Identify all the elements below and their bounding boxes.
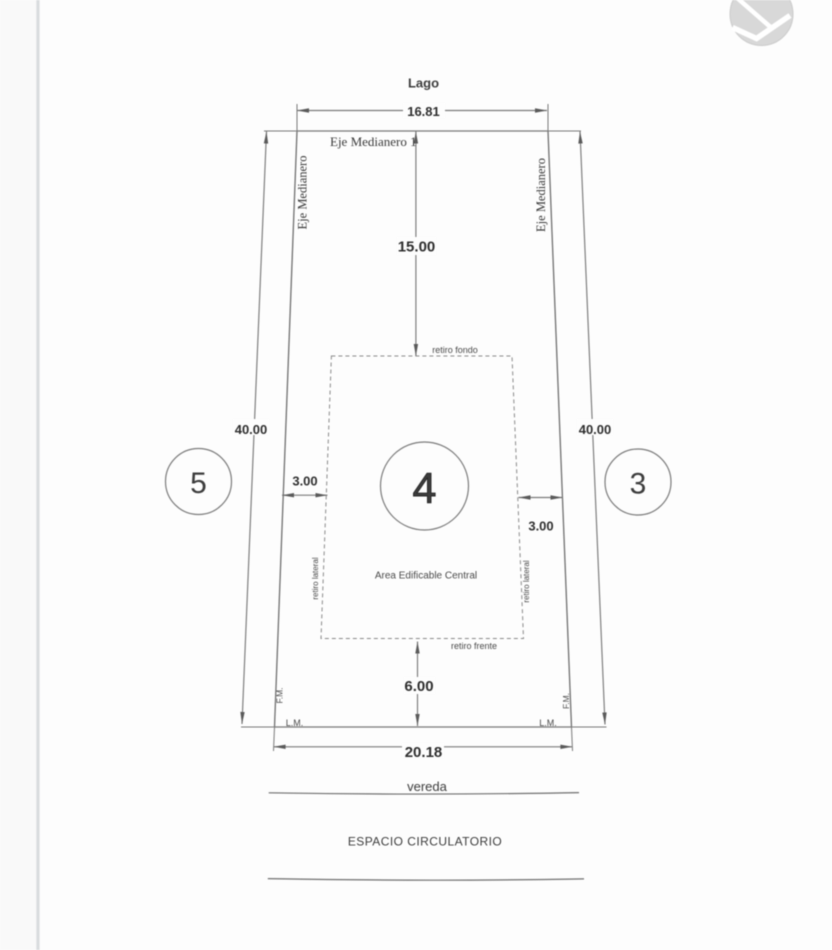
svg-text:40.00: 40.00 — [579, 422, 612, 437]
svg-text:L.M.: L.M. — [286, 718, 304, 728]
svg-text:Lago: Lago — [408, 76, 439, 91]
svg-text:L.M.: L.M. — [539, 718, 557, 728]
svg-text:3.00: 3.00 — [292, 474, 317, 489]
svg-text:5: 5 — [190, 467, 207, 500]
svg-text:4: 4 — [413, 465, 437, 513]
svg-text:vereda: vereda — [407, 779, 448, 794]
svg-text:3: 3 — [630, 468, 647, 501]
svg-text:6.00: 6.00 — [404, 678, 433, 695]
svg-text:ESPACIO CIRCULATORIO: ESPACIO CIRCULATORIO — [348, 835, 502, 849]
svg-text:retiro fondo: retiro fondo — [432, 345, 478, 355]
svg-text:Eje Medianero: Eje Medianero — [296, 156, 310, 230]
svg-text:retiro lateral: retiro lateral — [522, 560, 531, 602]
svg-text:F.M.: F.M. — [275, 687, 285, 703]
svg-text:F.M.: F.M. — [561, 693, 571, 709]
svg-text:3.00: 3.00 — [528, 519, 553, 534]
svg-text:Area Edificable Central: Area Edificable Central — [375, 571, 477, 582]
svg-text:40.00: 40.00 — [235, 422, 268, 437]
svg-text:Eje Medianero: Eje Medianero — [534, 158, 548, 232]
svg-text:retiro lateral: retiro lateral — [311, 557, 320, 599]
svg-text:Eje Medianero 1: Eje Medianero 1 — [330, 134, 417, 149]
svg-text:15.00: 15.00 — [398, 239, 436, 256]
svg-text:20.18: 20.18 — [405, 744, 443, 761]
svg-text:16.81: 16.81 — [407, 104, 440, 119]
svg-text:retiro frente: retiro frente — [451, 641, 497, 651]
